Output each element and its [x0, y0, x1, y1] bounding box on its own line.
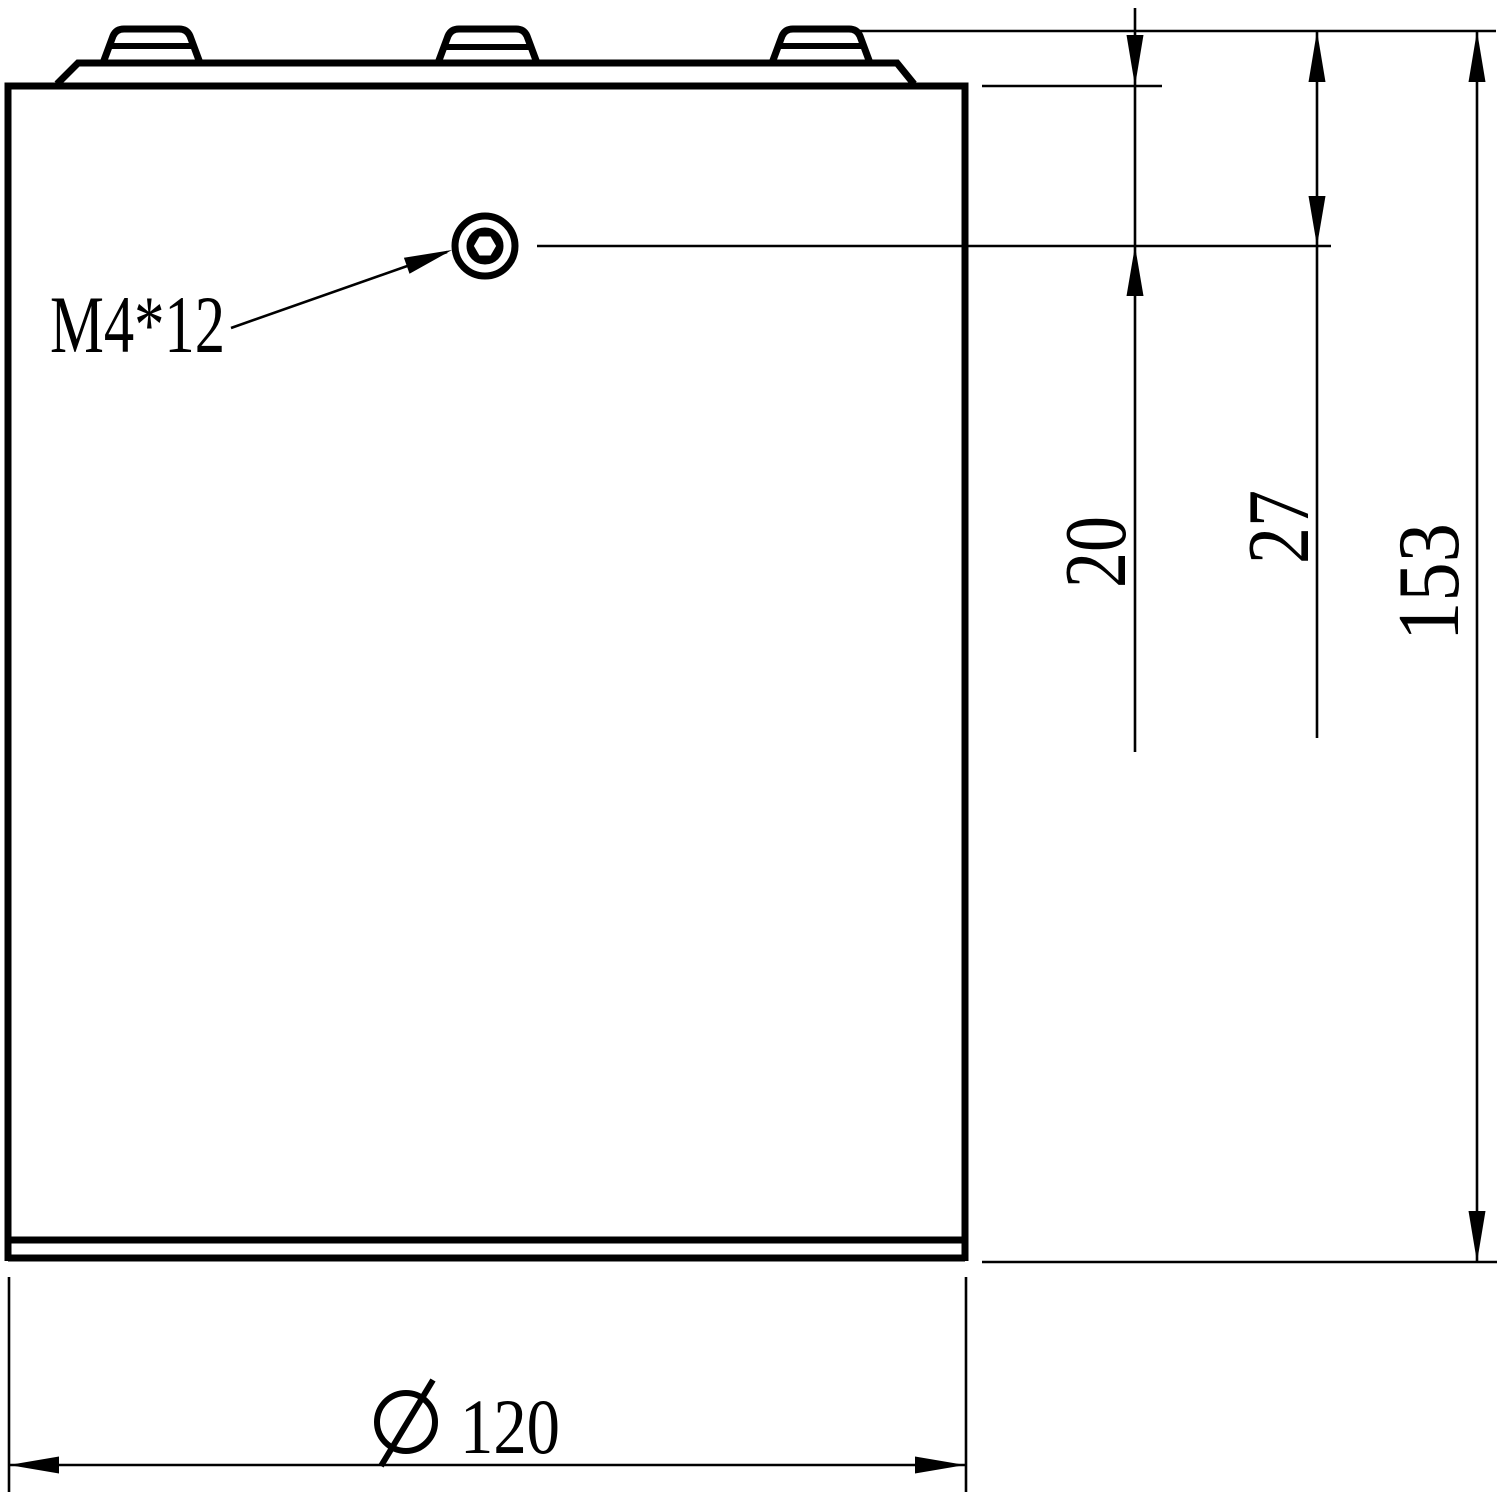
dimension-27: 27 [1231, 31, 1328, 738]
screw-hole [455, 216, 515, 276]
dimension-20-value: 20 [1048, 516, 1145, 588]
engineering-drawing: M4*12 20 27 [0, 0, 1500, 1500]
dimension-diameter-arrow-right-icon [915, 1457, 965, 1474]
dimension-20: 20 [1048, 8, 1145, 752]
dimension-153-arrow-up-icon [1469, 31, 1486, 82]
extension-lines [9, 31, 1497, 1492]
dimension-153-value: 153 [1381, 523, 1478, 641]
dimension-27-arrow-down-icon [1309, 196, 1326, 246]
screw-outer-circle [455, 216, 515, 276]
dimension-diameter-value: 120 [460, 1383, 560, 1470]
dimension-20-arrow-down-icon [1127, 35, 1144, 86]
leader-arrowhead-icon [404, 250, 452, 274]
screw-callout: M4*12 [50, 250, 452, 370]
diameter-symbol-icon [377, 1380, 435, 1466]
dimension-diameter-arrow-left-icon [9, 1457, 59, 1474]
dimension-153-arrow-down-icon [1469, 1211, 1486, 1262]
terminals [103, 29, 870, 63]
dimension-153: 153 [1381, 31, 1486, 1262]
dimension-27-value: 27 [1231, 490, 1328, 564]
screw-callout-label: M4*12 [50, 279, 225, 370]
dimension-diameter-120: 120 [9, 1380, 965, 1474]
top-lid [57, 63, 914, 84]
screw-hex-socket-icon [471, 234, 499, 258]
dimension-27-arrow-up-icon [1309, 31, 1326, 82]
dimension-20-arrow-up-icon [1127, 246, 1144, 296]
drawing-sheet: M4*12 20 27 [0, 0, 1500, 1500]
lid-profile [57, 63, 914, 84]
